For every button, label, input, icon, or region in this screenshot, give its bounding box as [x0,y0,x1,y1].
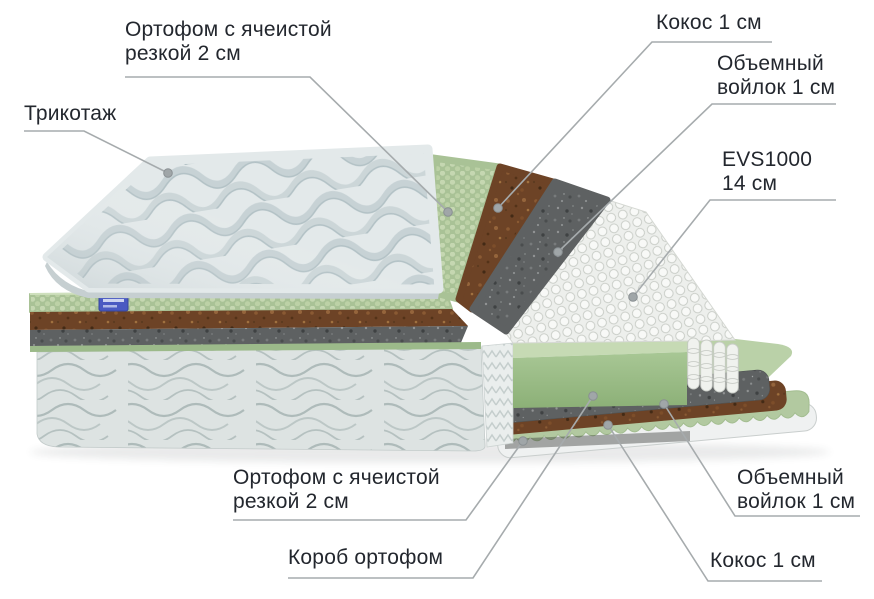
label-line: 14 см [722,172,812,196]
label-line: Трикотаж [24,102,116,126]
label-evs: EVS1000 14 см [722,148,812,196]
label-line: Кокос 1 см [710,549,816,573]
mattress-layers-diagram: Трикотаж Ортофом с ячеистой резкой 2 см … [0,0,874,599]
top-cover-sheet [45,149,439,299]
cover-cut-face [482,343,513,447]
label-line: Ортофом с ячеистой [233,466,440,490]
label-line: Ортофом с ячеистой [125,18,332,42]
label-tricot: Трикотаж [24,102,116,126]
label-box: Короб ортофом [288,546,443,570]
left-layer-stack [30,292,481,352]
label-line: Объемный [737,466,855,490]
label-felt-top: Объемный войлок 1 см [717,52,835,100]
label-line: резкой 2 см [233,490,440,514]
label-line: войлок 1 см [717,76,835,100]
foam-box-front [513,352,687,408]
label-line: резкой 2 см [125,42,332,66]
foam-box [513,336,687,408]
label-felt-bottom: Объемный войлок 1 см [737,466,855,514]
label-orthofoam-top: Ортофом с ячеистой резкой 2 см [125,18,332,66]
label-line: EVS1000 [722,148,812,172]
label-coconut-top: Кокос 1 см [656,11,762,35]
label-coconut-bottom: Кокос 1 см [710,549,816,573]
mattress-body-front [37,347,485,451]
label-line: войлок 1 см [737,490,855,514]
label-line: Объемный [717,52,835,76]
label-line: Кокос 1 см [656,11,762,35]
label-line: Короб ортофом [288,546,443,570]
label-orthofoam-bottom: Ортофом с ячеистой резкой 2 см [233,466,440,514]
